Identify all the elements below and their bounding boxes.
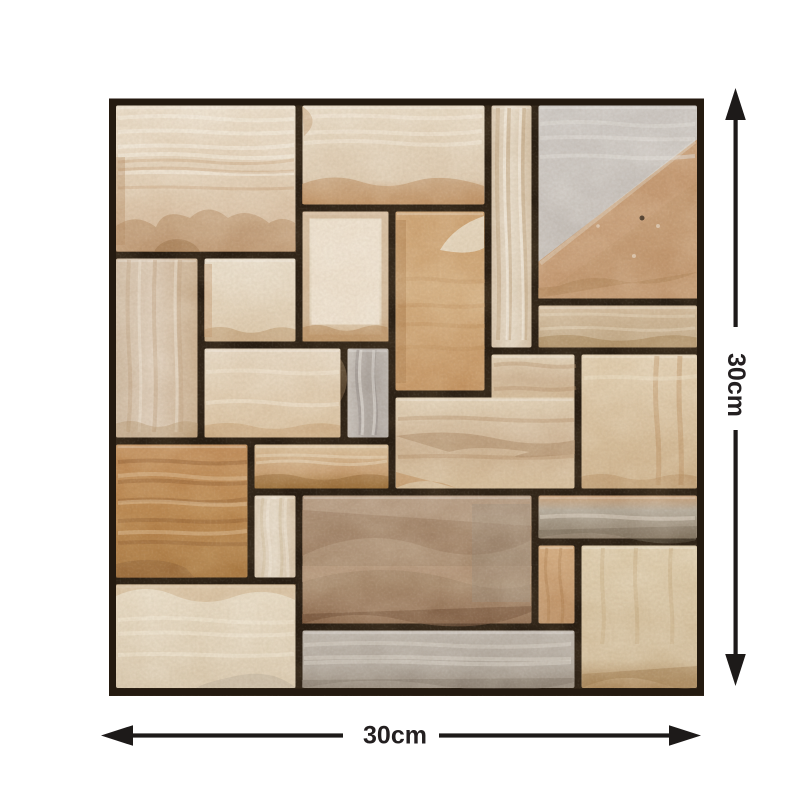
svg-text:30cm: 30cm	[722, 353, 750, 417]
svg-text:30cm: 30cm	[363, 722, 427, 750]
